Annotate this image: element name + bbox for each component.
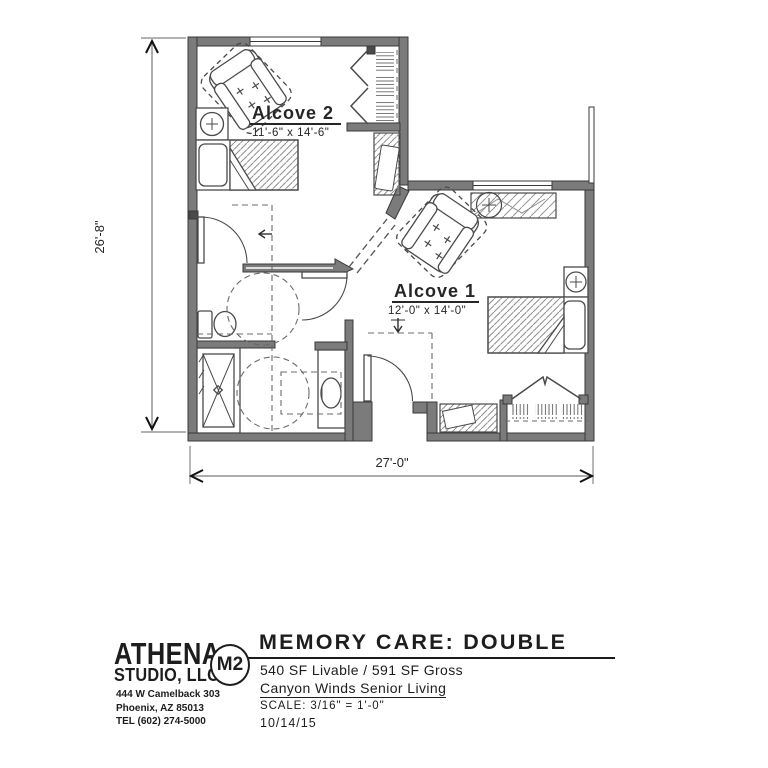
firm-address-line2: Phoenix, AZ 85013 [116, 702, 220, 716]
firm-address-line1: 444 W Camelback 303 [116, 688, 220, 702]
sheet-title: MEMORY CARE: DOUBLE [259, 630, 567, 655]
pillow [199, 144, 227, 186]
firm-address-line3: TEL (602) 274-5000 [116, 715, 220, 729]
bifold-door-icon [351, 88, 368, 124]
area-summary: 540 SF Livable / 591 SF Gross [260, 662, 463, 678]
dimension-left: 26'-8" [92, 38, 186, 432]
hanging-clothes [374, 52, 394, 122]
window-alcove1 [473, 181, 552, 190]
pillow [564, 301, 585, 349]
path-arrows [259, 230, 405, 332]
closet-jamb-block [367, 46, 375, 54]
entry-cased-opening [349, 219, 395, 273]
firm-name-2: STUDIO, LLC [114, 664, 219, 686]
bathroom-vanity [318, 350, 345, 428]
alcove1-label: Alcove 1 [394, 281, 476, 301]
dim-left-text: 26'-8" [92, 220, 107, 254]
adjacent-wall-line [589, 107, 594, 183]
alcove2-wardrobe [374, 133, 400, 195]
scale-note: SCALE: 3/16" = 1'-0" [260, 700, 385, 712]
alcove2-bed [196, 140, 298, 190]
alcove2-label: Alcove 2 [252, 103, 334, 123]
alcove1-nightstand [564, 267, 588, 297]
sheet-code: M2 [217, 654, 243, 676]
alcove2-dims: 11'-6" x 14'-6" [252, 127, 329, 139]
entry-closet [505, 377, 588, 421]
turning-circle [237, 357, 309, 429]
project-name: Canyon Winds Senior Living [260, 680, 446, 698]
alcove2-nightstand [196, 108, 228, 140]
firm-address: 444 W Camelback 303 Phoenix, AZ 85013 TE… [116, 688, 220, 729]
alcove2-closet [351, 50, 397, 124]
arrow-down-icon [391, 318, 405, 332]
alcove1-dresser [471, 193, 556, 219]
entry-door [364, 355, 413, 401]
sheet-date: 10/14/15 [260, 716, 317, 730]
hall-door [198, 217, 247, 263]
door-jamb-block [189, 211, 198, 219]
bifold-door-icon [351, 50, 368, 86]
toilet-bowl [214, 312, 236, 337]
alcove1-bed [488, 297, 588, 353]
hanging-clothes [512, 404, 583, 419]
alcove1-dims: 12'-0" x 14'-0" [388, 305, 466, 317]
title-rule [247, 657, 615, 659]
bathroom-door [302, 272, 347, 320]
entry-bench [440, 404, 497, 432]
sink-icon [321, 378, 341, 408]
bathroom-shower [197, 348, 240, 433]
sheet-code-badge: M2 [210, 644, 250, 686]
floor-plan-sheet: Alcove 2 11'-6" x 14'-6" Alcove 1 12'-0"… [0, 0, 768, 768]
window-alcove2 [250, 37, 321, 46]
arrow-left-icon [259, 230, 272, 238]
bifold-door-icon [512, 377, 581, 399]
dimension-bottom: 27'-0" [190, 446, 593, 484]
dim-bottom-text: 27'-0" [375, 455, 409, 470]
